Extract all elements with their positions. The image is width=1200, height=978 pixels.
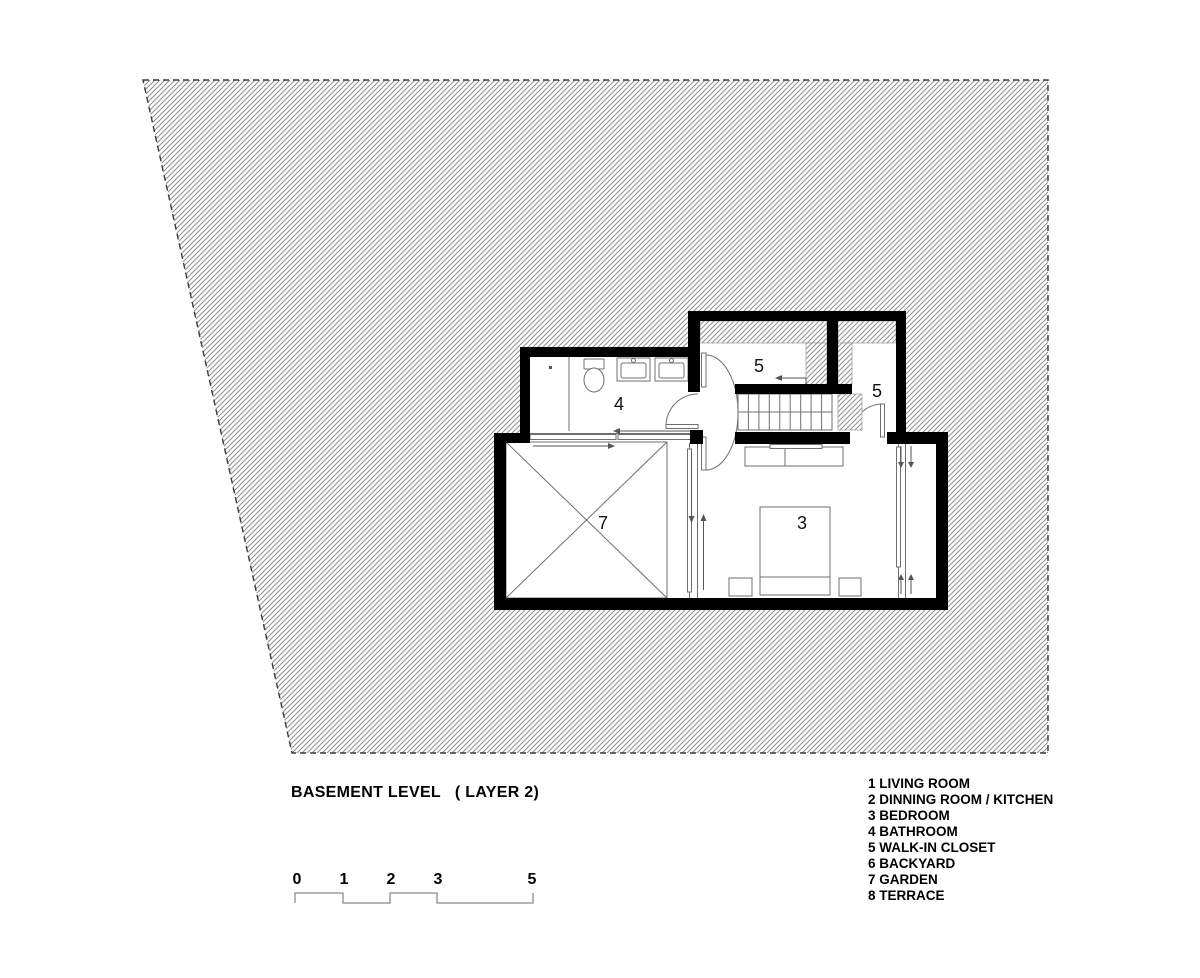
- wall-dot: [549, 366, 552, 369]
- scale-tick-2: 2: [387, 871, 396, 888]
- sink-icon: [655, 358, 688, 381]
- legend-item-bathroom: 4 BATHROOM: [868, 824, 1053, 840]
- legend-item-living-room: 1 LIVING ROOM: [868, 776, 1053, 792]
- drawing-title: BASEMENT LEVEL ( LAYER 2): [291, 784, 539, 802]
- sink-icon: [617, 358, 650, 381]
- legend: 1 LIVING ROOM 2 DINNING ROOM / KITCHEN 3…: [868, 776, 1053, 904]
- floor-plan-page: 4 5 5 7 3 0 1 2 3 5 BASEMENT LEVEL ( LAY…: [0, 0, 1200, 978]
- scale-bar: 0 1 2 3 5: [293, 871, 537, 903]
- legend-item-garden: 7 GARDEN: [868, 872, 1053, 888]
- nightstand: [839, 578, 861, 596]
- dresser: [745, 445, 843, 467]
- room-label-bathroom: 4: [614, 394, 624, 414]
- scale-tick-3: 3: [434, 871, 443, 888]
- room-label-bedroom: 3: [797, 513, 807, 533]
- scale-tick-5: 5: [528, 871, 537, 888]
- nightstand: [729, 578, 752, 596]
- room-label-closet-top: 5: [754, 356, 764, 376]
- room-label-closet-right: 5: [872, 381, 882, 401]
- scale-tick-0: 0: [293, 871, 302, 888]
- legend-item-walk-in-closet: 5 WALK-IN CLOSET: [868, 840, 1053, 856]
- legend-item-bedroom: 3 BEDROOM: [868, 808, 1053, 824]
- toilet-icon: [584, 359, 604, 392]
- scale-tick-1: 1: [340, 871, 349, 888]
- legend-item-terrace: 8 TERRACE: [868, 888, 1053, 904]
- legend-item-dining-kitchen: 2 DINNING ROOM / KITCHEN: [868, 792, 1053, 808]
- legend-item-backyard: 6 BACKYARD: [868, 856, 1053, 872]
- room-label-garden: 7: [598, 513, 608, 533]
